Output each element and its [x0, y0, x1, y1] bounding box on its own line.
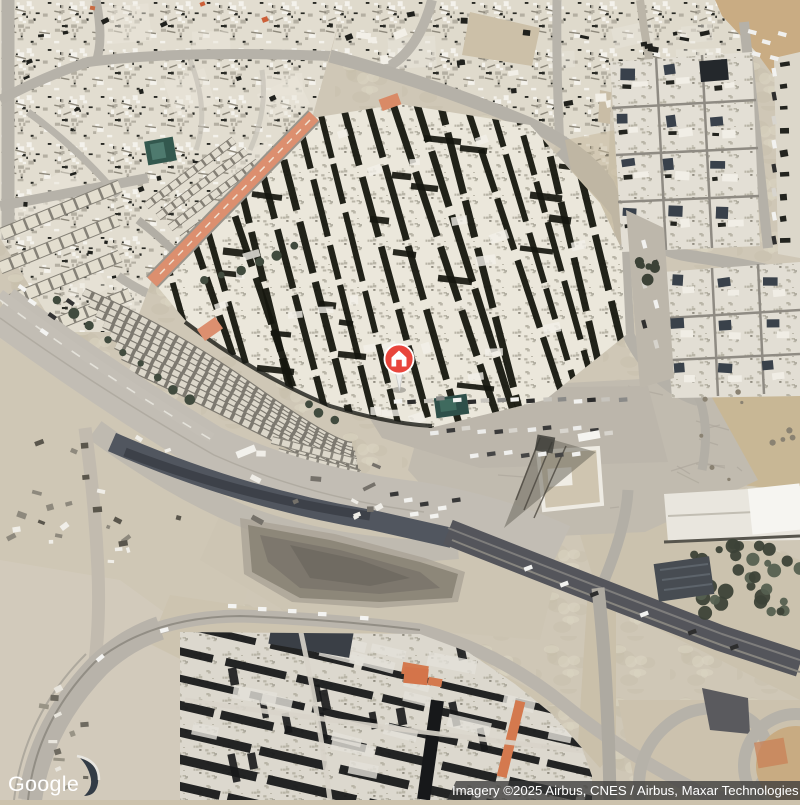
svg-text:Imagery ©2025 Airbus, CNES / A: Imagery ©2025 Airbus, CNES / Airbus, Max…	[452, 783, 799, 798]
svg-text:Google: Google	[8, 772, 79, 796]
